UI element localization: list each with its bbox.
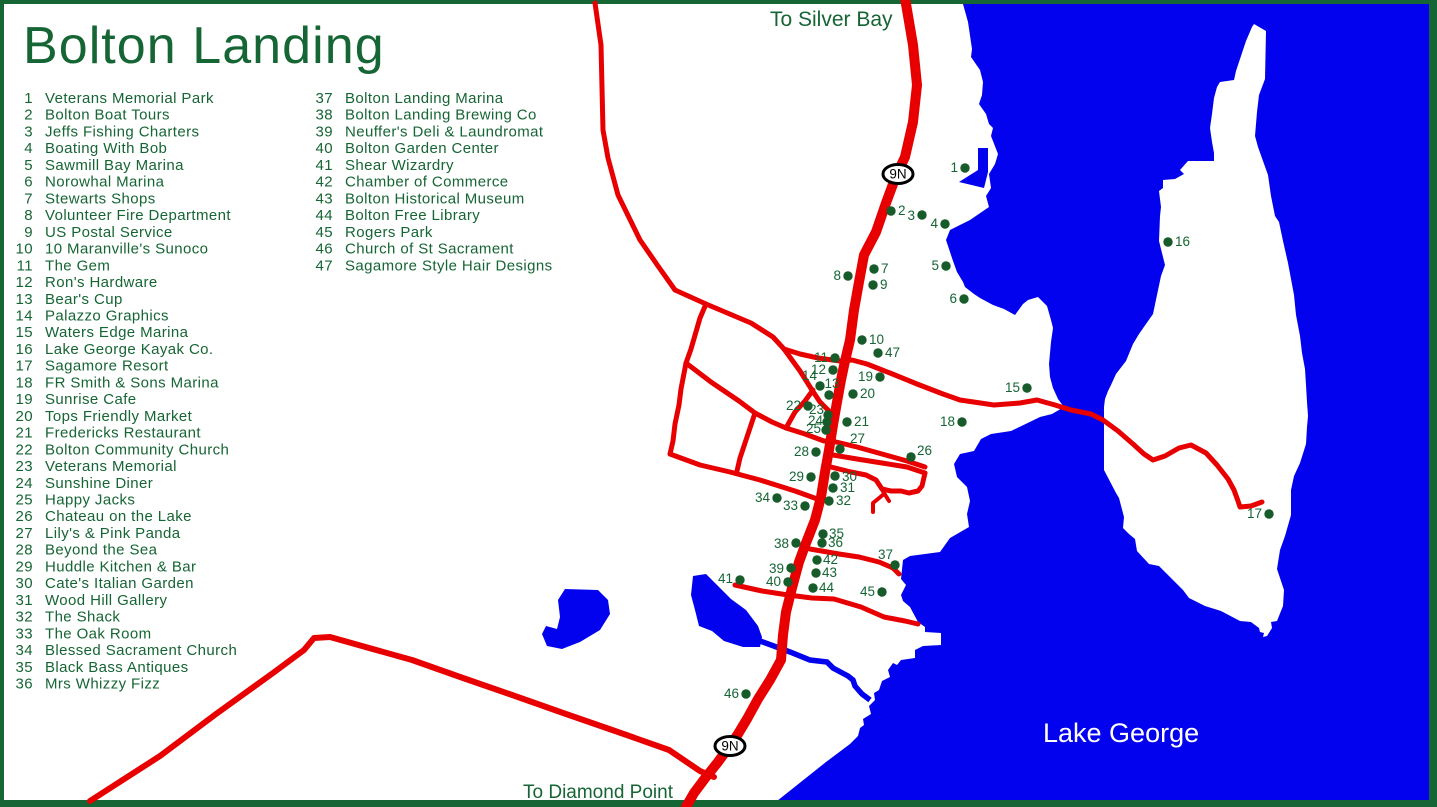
svg-text:39: 39: [316, 124, 334, 141]
svg-text:29: 29: [16, 558, 34, 575]
svg-text:Boating With Bob: Boating With Bob: [45, 140, 167, 157]
svg-text:35: 35: [16, 659, 34, 676]
svg-text:8: 8: [24, 207, 33, 224]
svg-text:1: 1: [950, 160, 958, 175]
svg-text:15: 15: [16, 324, 34, 341]
svg-text:8: 8: [833, 268, 841, 283]
svg-text:3: 3: [24, 124, 33, 141]
svg-text:9: 9: [24, 224, 33, 241]
svg-text:47: 47: [885, 345, 900, 360]
svg-text:Black Bass Antiques: Black Bass Antiques: [45, 659, 189, 676]
svg-text:37: 37: [316, 90, 334, 107]
svg-text:Stewarts Shops: Stewarts Shops: [45, 190, 156, 207]
svg-text:38: 38: [316, 107, 334, 124]
svg-text:25: 25: [806, 421, 821, 436]
svg-text:10: 10: [16, 241, 34, 258]
svg-text:18: 18: [16, 374, 34, 391]
svg-text:15: 15: [1005, 380, 1020, 395]
svg-text:27: 27: [850, 431, 865, 446]
svg-text:Bolton Landing Marina: Bolton Landing Marina: [345, 90, 504, 107]
svg-text:2: 2: [24, 107, 33, 124]
svg-text:Veterans Memorial: Veterans Memorial: [45, 458, 177, 475]
svg-text:41: 41: [316, 157, 334, 174]
svg-text:Bolton Community Church: Bolton Community Church: [45, 441, 229, 458]
svg-text:2: 2: [898, 203, 906, 218]
svg-text:9: 9: [880, 277, 888, 292]
svg-text:12: 12: [16, 274, 34, 291]
svg-text:Cate's Italian Garden: Cate's Italian Garden: [45, 575, 194, 592]
svg-text:31: 31: [16, 592, 34, 609]
svg-text:43: 43: [316, 190, 334, 207]
svg-text:4: 4: [930, 216, 938, 231]
svg-text:Huddle Kitchen & Bar: Huddle Kitchen & Bar: [45, 558, 196, 575]
svg-text:Wood Hill Gallery: Wood Hill Gallery: [45, 592, 167, 609]
svg-text:17: 17: [16, 358, 34, 375]
svg-text:21: 21: [854, 414, 869, 429]
svg-text:33: 33: [16, 625, 34, 642]
svg-text:16: 16: [1175, 234, 1190, 249]
svg-text:Bolton Free Library: Bolton Free Library: [345, 207, 480, 224]
svg-text:22: 22: [16, 441, 34, 458]
svg-text:Blessed Sacrament Church: Blessed Sacrament Church: [45, 642, 237, 659]
svg-text:Bolton Landing Brewing Co: Bolton Landing Brewing Co: [345, 107, 537, 124]
svg-text:Lake George: Lake George: [1043, 718, 1199, 748]
svg-text:Palazzo Graphics: Palazzo Graphics: [45, 308, 169, 325]
svg-text:4: 4: [24, 140, 33, 157]
svg-text:40: 40: [316, 140, 334, 157]
svg-text:45: 45: [860, 584, 875, 599]
svg-text:20: 20: [16, 408, 34, 425]
svg-text:24: 24: [16, 475, 34, 492]
svg-text:6: 6: [24, 174, 33, 191]
svg-text:19: 19: [16, 391, 34, 408]
svg-text:33: 33: [783, 498, 798, 513]
svg-text:21: 21: [16, 425, 34, 442]
svg-text:Sagamore Resort: Sagamore Resort: [45, 358, 169, 375]
svg-text:18: 18: [940, 414, 955, 429]
svg-text:32: 32: [836, 493, 851, 508]
svg-text:Lake George Kayak Co.: Lake George Kayak Co.: [45, 341, 214, 358]
svg-text:Shear Wizardry: Shear Wizardry: [345, 157, 454, 174]
svg-text:26: 26: [917, 443, 932, 458]
svg-text:38: 38: [774, 536, 789, 551]
svg-text:46: 46: [724, 686, 739, 701]
svg-text:29: 29: [789, 469, 804, 484]
svg-text:To Silver Bay: To Silver Bay: [770, 8, 893, 31]
svg-text:13: 13: [824, 376, 839, 391]
svg-text:20: 20: [860, 386, 875, 401]
svg-text:30: 30: [16, 575, 34, 592]
svg-text:25: 25: [16, 492, 34, 509]
svg-text:9N: 9N: [889, 167, 906, 182]
svg-text:Bolton Boat Tours: Bolton Boat Tours: [45, 107, 170, 124]
svg-text:6: 6: [949, 291, 957, 306]
svg-text:Tops Friendly Market: Tops Friendly Market: [45, 408, 193, 425]
svg-text:5: 5: [931, 258, 939, 273]
svg-text:Ron's Hardware: Ron's Hardware: [45, 274, 158, 291]
svg-text:Bear's Cup: Bear's Cup: [45, 291, 123, 308]
svg-text:3: 3: [907, 208, 915, 223]
svg-text:17: 17: [1247, 506, 1262, 521]
svg-text:Sunshine Diner: Sunshine Diner: [45, 475, 153, 492]
svg-text:36: 36: [828, 535, 843, 550]
svg-text:16: 16: [16, 341, 34, 358]
svg-text:44: 44: [819, 580, 835, 595]
svg-text:41: 41: [718, 571, 733, 586]
svg-text:28: 28: [794, 444, 809, 459]
svg-text:44: 44: [316, 207, 334, 224]
svg-text:37: 37: [878, 547, 893, 562]
svg-text:Mrs Whizzy Fizz: Mrs Whizzy Fizz: [45, 676, 160, 693]
svg-text:Rogers Park: Rogers Park: [345, 224, 433, 241]
svg-text:19: 19: [858, 369, 873, 384]
svg-text:42: 42: [316, 174, 334, 191]
svg-text:10 Maranville's Sunoco: 10 Maranville's Sunoco: [45, 241, 208, 258]
svg-text:13: 13: [16, 291, 34, 308]
svg-text:40: 40: [766, 574, 781, 589]
svg-text:5: 5: [24, 157, 33, 174]
svg-text:14: 14: [16, 308, 34, 325]
svg-text:43: 43: [822, 565, 837, 580]
svg-text:26: 26: [16, 508, 34, 525]
svg-text:Waters Edge Marina: Waters Edge Marina: [45, 324, 189, 341]
svg-text:45: 45: [316, 224, 334, 241]
svg-text:32: 32: [16, 609, 34, 626]
svg-text:Bolton Historical Museum: Bolton Historical Museum: [345, 190, 525, 207]
svg-text:22: 22: [786, 398, 801, 413]
svg-text:28: 28: [16, 542, 34, 559]
svg-text:9N: 9N: [721, 739, 738, 754]
svg-text:The Gem: The Gem: [45, 257, 110, 274]
svg-text:Sunrise Cafe: Sunrise Cafe: [45, 391, 137, 408]
svg-text:46: 46: [316, 241, 334, 258]
svg-text:1: 1: [24, 90, 33, 107]
svg-text:To Diamond Point: To Diamond Point: [523, 782, 674, 803]
svg-text:Church of St Sacrament: Church of St Sacrament: [345, 241, 514, 258]
svg-text:Norowhal Marina: Norowhal Marina: [45, 174, 165, 191]
svg-text:34: 34: [755, 490, 771, 505]
svg-text:23: 23: [16, 458, 34, 475]
svg-text:Sagamore Style Hair Designs: Sagamore Style Hair Designs: [345, 257, 553, 274]
svg-text:Happy Jacks: Happy Jacks: [45, 492, 135, 509]
svg-text:Lily's & Pink Panda: Lily's & Pink Panda: [45, 525, 181, 542]
svg-text:Beyond the Sea: Beyond the Sea: [45, 542, 158, 559]
svg-text:Neuffer's Deli & Laundromat: Neuffer's Deli & Laundromat: [345, 124, 544, 141]
svg-text:Veterans Memorial Park: Veterans Memorial Park: [45, 90, 214, 107]
svg-text:FR Smith & Sons Marina: FR Smith & Sons Marina: [45, 374, 219, 391]
svg-text:34: 34: [16, 642, 34, 659]
svg-text:Bolton Garden Center: Bolton Garden Center: [345, 140, 499, 157]
svg-text:Chamber of Commerce: Chamber of Commerce: [345, 174, 508, 191]
svg-text:The Shack: The Shack: [45, 609, 120, 626]
svg-text:Bolton Landing: Bolton Landing: [23, 17, 385, 75]
svg-text:7: 7: [24, 190, 33, 207]
svg-text:10: 10: [869, 332, 884, 347]
svg-text:14: 14: [802, 368, 818, 383]
svg-text:11: 11: [17, 257, 33, 274]
svg-text:Chateau on the Lake: Chateau on the Lake: [45, 508, 192, 525]
svg-text:The Oak Room: The Oak Room: [45, 625, 152, 642]
svg-text:Volunteer Fire Department: Volunteer Fire Department: [45, 207, 231, 224]
svg-text:Fredericks Restaurant: Fredericks Restaurant: [45, 425, 201, 442]
svg-text:Sawmill Bay Marina: Sawmill Bay Marina: [45, 157, 184, 174]
svg-text:27: 27: [16, 525, 34, 542]
svg-text:47: 47: [316, 257, 334, 274]
svg-text:7: 7: [881, 261, 889, 276]
svg-text:US Postal Service: US Postal Service: [45, 224, 173, 241]
svg-text:36: 36: [16, 676, 34, 693]
svg-text:Jeffs Fishing Charters: Jeffs Fishing Charters: [45, 124, 199, 141]
